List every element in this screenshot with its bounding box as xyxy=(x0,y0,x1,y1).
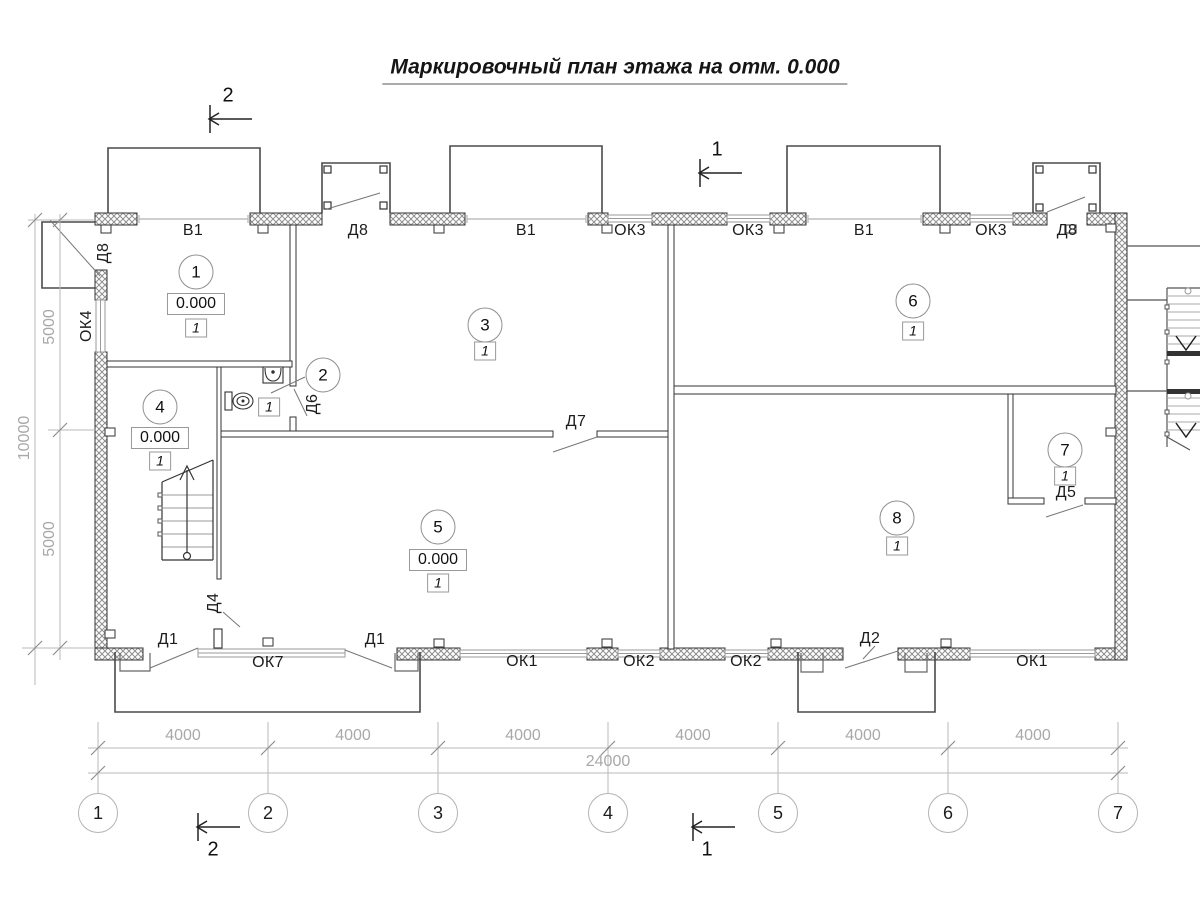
mark-ok3-2: ОК3 xyxy=(732,222,764,240)
mark-d1-1: Д1 xyxy=(158,631,179,649)
section-1-bottom-label: 1 xyxy=(701,839,712,862)
dim-bay-5: 4000 xyxy=(845,727,881,745)
room-5-mark: 1 xyxy=(427,574,449,593)
room-1-number: 1 xyxy=(179,255,214,290)
toilet xyxy=(225,392,253,410)
sink xyxy=(263,367,283,383)
axis-bubble-4: 4 xyxy=(588,793,628,833)
room-5-elevation: 0.000 xyxy=(409,549,467,571)
room-5-number: 5 xyxy=(421,510,456,545)
interior-walls xyxy=(107,225,1116,649)
mark-v1-top-1: В1 xyxy=(183,222,203,240)
mark-d6: Д6 xyxy=(304,394,322,415)
axis-bubble-5: 5 xyxy=(758,793,798,833)
dim-total: 24000 xyxy=(586,753,631,771)
dim-bay-3: 4000 xyxy=(505,727,541,745)
room-6-number: 6 xyxy=(896,284,931,319)
mark-v1-top-3: В1 xyxy=(854,222,874,240)
axis-bubble-6: 6 xyxy=(928,793,968,833)
mark-d8-top-2: Д8 xyxy=(1057,222,1078,240)
mark-ok1-1: ОК1 xyxy=(506,653,538,671)
room-1-mark: 1 xyxy=(185,319,207,338)
room-3-number: 3 xyxy=(468,308,503,343)
room-8-mark: 1 xyxy=(886,537,908,556)
room-4-number: 4 xyxy=(143,390,178,425)
dim-bay-6: 4000 xyxy=(1015,727,1051,745)
mark-ok3-3: ОК3 xyxy=(975,222,1007,240)
room-1-elevation: 0.000 xyxy=(167,293,225,315)
mark-d8-left: Д8 xyxy=(95,243,113,264)
room-2-mark: 1 xyxy=(258,398,280,417)
mark-d7: Д7 xyxy=(566,413,587,431)
mark-d8-top-1: Д8 xyxy=(348,222,369,240)
dim-bay-2: 4000 xyxy=(335,727,371,745)
door-leaf-d4 xyxy=(214,629,222,648)
axis-bubble-7: 7 xyxy=(1098,793,1138,833)
mark-d2: Д2 xyxy=(860,630,881,648)
mark-d4: Д4 xyxy=(205,593,223,614)
room-4-elevation: 0.000 xyxy=(131,427,189,449)
room-2-number: 2 xyxy=(306,358,341,393)
mark-ok1-2: ОК1 xyxy=(1016,653,1048,671)
dim-bay-1: 4000 xyxy=(165,727,201,745)
mark-d5: Д5 xyxy=(1056,484,1077,502)
mark-ok7: ОК7 xyxy=(252,654,284,672)
room-3-mark: 1 xyxy=(474,342,496,361)
mark-ok4: ОК4 xyxy=(78,310,96,342)
section-2-top-label: 2 xyxy=(222,85,233,108)
axis-bubble-3: 3 xyxy=(418,793,458,833)
section-1-top-label: 1 xyxy=(711,139,722,162)
mark-ok3-1: ОК3 xyxy=(614,222,646,240)
axis-bubble-2: 2 xyxy=(248,793,288,833)
interior-stairs xyxy=(158,460,213,560)
mark-d1-2: Д1 xyxy=(365,631,386,649)
floor-plan-canvas: Маркировочный план этажа на отм. 0.000 xyxy=(0,0,1200,900)
dim-left-bay-1: 5000 xyxy=(41,309,59,345)
room-7-mark: 1 xyxy=(1054,467,1076,486)
exterior-stairs xyxy=(1127,246,1200,450)
mark-v1-top-2: В1 xyxy=(516,222,536,240)
dim-left-bay-2: 5000 xyxy=(41,521,59,557)
room-7-number: 7 xyxy=(1048,433,1083,468)
room-6-mark: 1 xyxy=(902,322,924,341)
section-2-bottom-label: 2 xyxy=(207,839,218,862)
dim-bay-4: 4000 xyxy=(675,727,711,745)
mark-ok2-1: ОК2 xyxy=(623,653,655,671)
dim-left-total: 10000 xyxy=(16,416,34,461)
axis-bubble-1: 1 xyxy=(78,793,118,833)
mark-ok2-2: ОК2 xyxy=(730,653,762,671)
room-8-number: 8 xyxy=(880,501,915,536)
room-4-mark: 1 xyxy=(149,452,171,471)
